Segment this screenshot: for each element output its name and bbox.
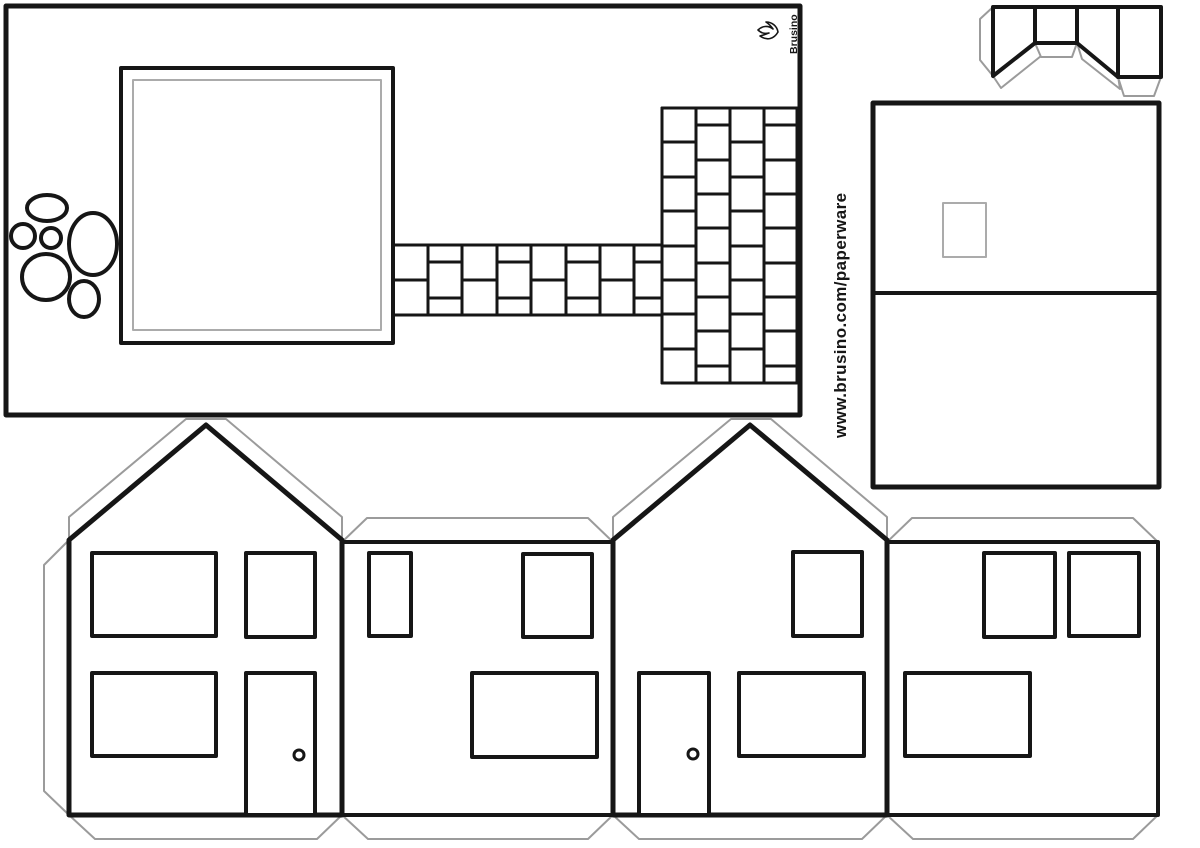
gable2-door bbox=[639, 673, 709, 815]
gable1-window-upper-left bbox=[92, 553, 216, 636]
gable2-door-knob bbox=[688, 749, 698, 759]
stone-6 bbox=[69, 281, 99, 317]
papercraft-sheet-svg: Brusinowww.brusino.com/paperware bbox=[0, 0, 1200, 848]
house-footprint-outline bbox=[121, 68, 393, 343]
wall-glue-tab-left-side bbox=[44, 540, 69, 815]
gable1-door bbox=[246, 673, 315, 815]
gable1-door-knob bbox=[294, 750, 304, 760]
wall-glue-tab-top-1 bbox=[342, 518, 613, 542]
chimney-glue-tab-b bbox=[1035, 43, 1077, 57]
stone-2 bbox=[11, 224, 35, 248]
papercraft-sheet: Brusinowww.brusino.com/paperware bbox=[0, 0, 1200, 848]
stone-1 bbox=[27, 195, 67, 221]
brusino-logo-text: Brusino bbox=[788, 14, 800, 54]
side1-window-narrow bbox=[369, 553, 411, 636]
side2-window-wide bbox=[905, 673, 1030, 756]
gable2-window-wide bbox=[739, 673, 864, 756]
side2-window-upper-right bbox=[1069, 553, 1139, 636]
wall-glue-tab-bottom-4 bbox=[887, 815, 1158, 839]
gable1-window-upper-right bbox=[246, 553, 315, 637]
wall-glue-tab-bottom-2 bbox=[342, 815, 613, 839]
wall-glue-tab-bottom-1 bbox=[69, 815, 342, 839]
gable2-window-upper-right bbox=[793, 552, 862, 636]
chimney-glue-tab-d bbox=[1118, 77, 1161, 96]
website-url-text: www.brusino.com/paperware bbox=[831, 192, 850, 439]
side1-window-wide bbox=[472, 673, 597, 757]
stone-4 bbox=[69, 213, 117, 275]
gable1-window-lower-left bbox=[92, 673, 216, 756]
stone-5 bbox=[22, 254, 70, 300]
side1-window-upper-right bbox=[523, 554, 592, 637]
wall-glue-tab-top-2 bbox=[887, 518, 1158, 542]
wall-glue-tab-bottom-3 bbox=[613, 815, 887, 839]
side2-window-upper-left bbox=[984, 553, 1055, 637]
stone-3 bbox=[41, 228, 61, 248]
